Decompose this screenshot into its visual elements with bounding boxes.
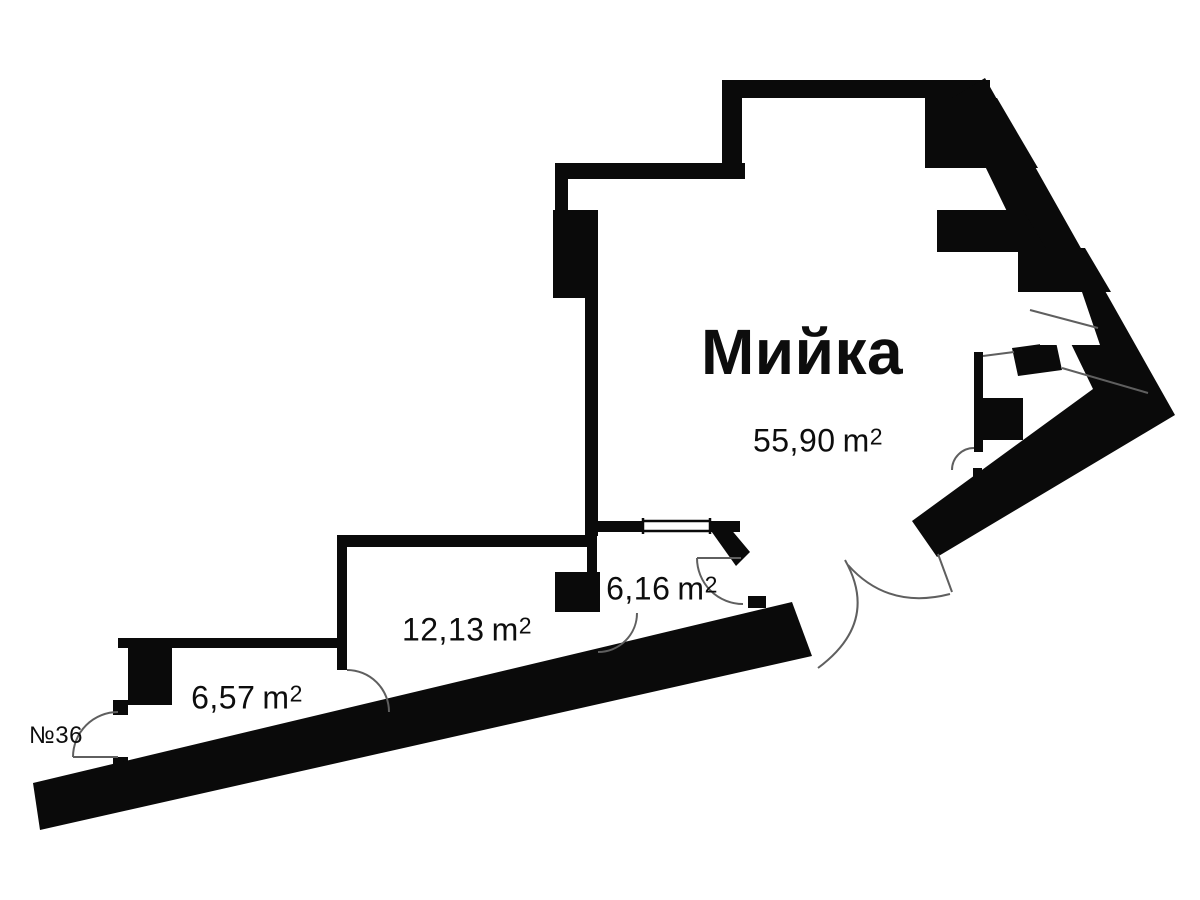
unit-number-label: №36 [29, 722, 83, 750]
stub-room616-door [748, 596, 766, 608]
room-1213-area-value: 12,13 [402, 612, 485, 648]
closet-door-arc [952, 448, 974, 470]
closet-duct-block [983, 398, 1023, 440]
room-616-area-sup: 2 [705, 572, 718, 598]
double-door-right-jamb-line [938, 554, 952, 592]
wall-left-lower [585, 294, 598, 536]
room-1213-area-suffix: m [492, 612, 519, 648]
floorplan-canvas: Мийка 55,90m2 12,13m2 6,16m2 6,57m2 №36 [0, 0, 1200, 900]
room-label-657-area: 6,57m2 [191, 680, 303, 717]
wall-top-horizontal [722, 80, 990, 98]
washroom-area-suffix: m [843, 423, 870, 459]
room-label-washroom-name: Мийка [701, 315, 903, 389]
room-657-area-sup: 2 [290, 681, 303, 707]
wall-stub-window-2 [1018, 248, 1111, 292]
washroom-area-value: 55,90 [753, 423, 836, 459]
wall-block-below-top [925, 98, 1038, 168]
wall-left-upper [555, 163, 568, 218]
closet-wall-upper [974, 352, 983, 452]
double-door-left-arc [818, 560, 858, 668]
floorplan-drawing [0, 0, 1200, 900]
closet-wall-lower [973, 468, 982, 492]
wall-room657-block [128, 638, 172, 705]
room-657-area-suffix: m [262, 680, 289, 716]
double-door-right-arc [848, 565, 950, 598]
room-label-616-area: 6,16m2 [606, 571, 718, 608]
room-1213-area-sup: 2 [519, 613, 532, 639]
room-label-washroom-area: 55,90m2 [753, 423, 883, 460]
wall-room1213-left [337, 535, 347, 670]
wall-pillar [555, 572, 600, 612]
wall-left-block [553, 210, 598, 298]
wall-top-left-horizontal [555, 163, 745, 179]
washroom-area-sup: 2 [870, 424, 883, 450]
room-657-area-value: 6,57 [191, 680, 255, 716]
closet-top-line [983, 352, 1014, 356]
room-label-1213-area: 12,13m2 [402, 612, 532, 649]
room-616-area-value: 6,16 [606, 571, 670, 607]
closet-corner-block [1012, 342, 1062, 376]
room-616-area-suffix: m [677, 571, 704, 607]
wall-room1213-top [342, 535, 597, 547]
walls-group [33, 78, 1175, 830]
